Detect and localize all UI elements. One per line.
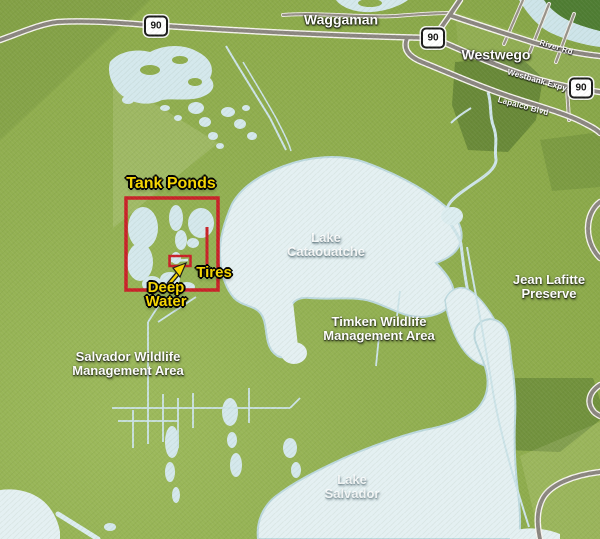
salvador-wma-line1: Salvador Wildlife (72, 350, 184, 364)
timken-wma-line1: Timken Wildlife (323, 315, 435, 329)
area-label-jean-lafitte: Jean Lafitte Preserve (513, 273, 585, 301)
town-label-waggaman: Waggaman (304, 12, 378, 27)
canals-north (226, 46, 291, 151)
annotation-label-tank-ponds: Tank Ponds (126, 177, 216, 191)
map: Waggaman Westwego River Rd Westbank Expy… (0, 0, 600, 539)
deep-water-line2: Water (145, 295, 186, 309)
deep-water-canal (171, 260, 188, 261)
highway-shield-90-center: 90 (421, 28, 445, 49)
jean-lafitte-line2: Preserve (513, 287, 585, 301)
timken-wma-line2: Management Area (323, 329, 435, 343)
area-label-salvador-wma: Salvador Wildlife Management Area (72, 350, 184, 378)
lake-label-cataouatche: Lake Cataouatche (287, 231, 365, 259)
lake-salvador-line1: Lake (325, 473, 380, 487)
town-label-westwego: Westwego (462, 47, 531, 62)
highway-shield-90-east: 90 (569, 78, 593, 99)
salvador-wma-line2: Management Area (72, 364, 184, 378)
map-canvas (0, 0, 600, 539)
area-label-timken-wma: Timken Wildlife Management Area (323, 315, 435, 343)
lake-cataouatche-line1: Lake (287, 231, 365, 245)
jean-lafitte-line1: Jean Lafitte (513, 273, 585, 287)
lake-salvador-line2: Salvador (325, 487, 380, 501)
lake-label-salvador: Lake Salvador (325, 473, 380, 501)
annotation-label-deep-water: Deep Water (145, 281, 186, 309)
annotation-label-tires: Tires (196, 266, 232, 280)
highway-shield-90-west: 90 (144, 16, 168, 37)
lake-cataouatche-line2: Cataouatche (287, 245, 365, 259)
